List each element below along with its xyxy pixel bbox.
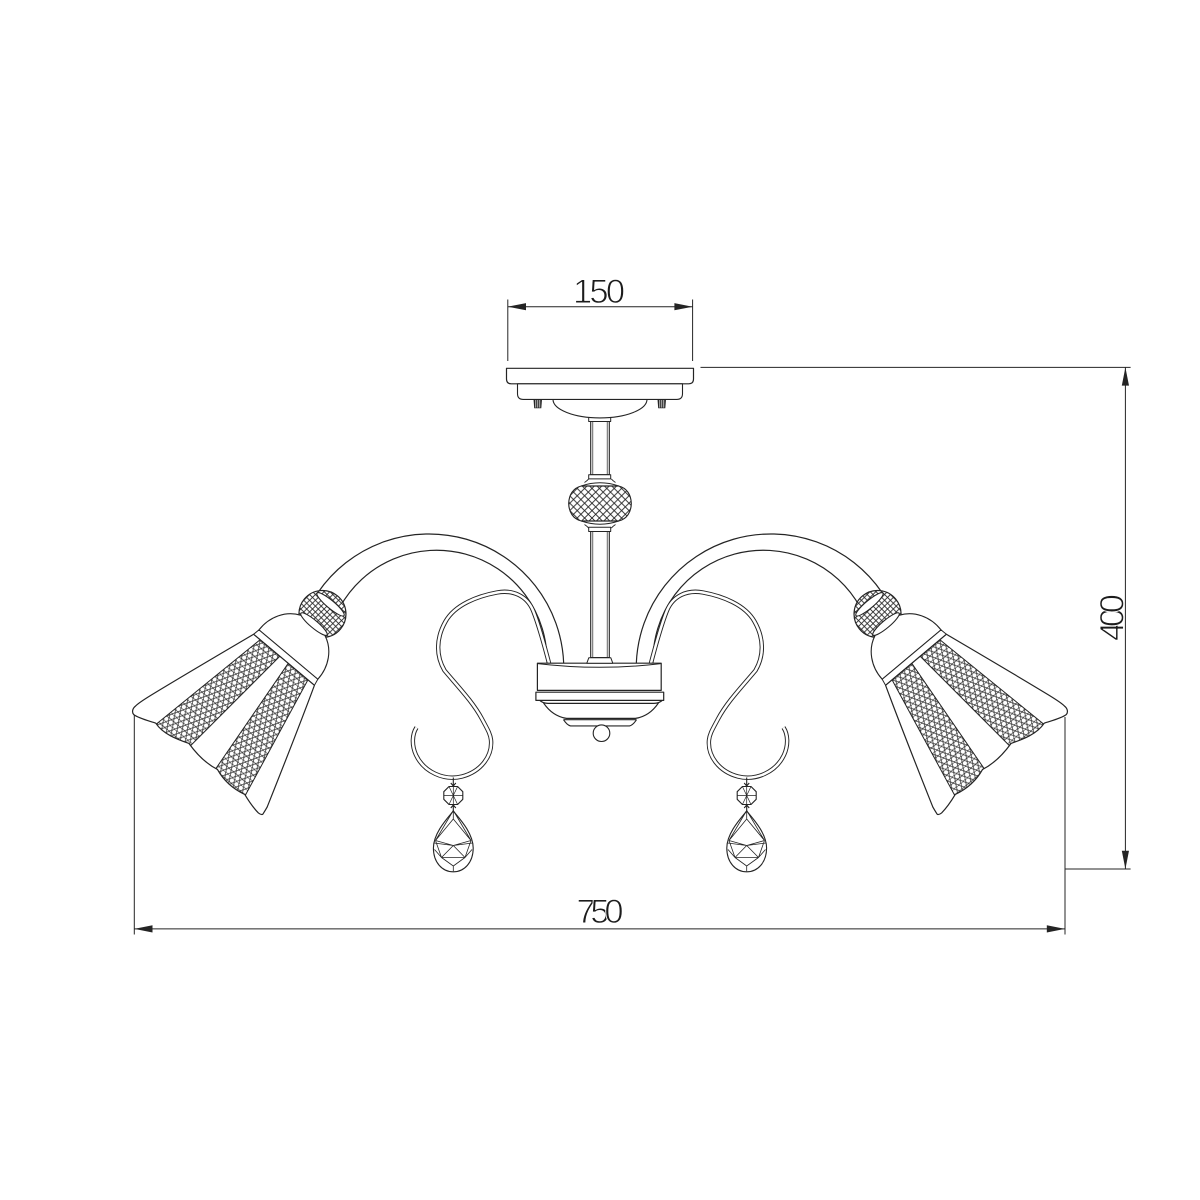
svg-text:400: 400 xyxy=(1094,594,1132,641)
svg-text:750: 750 xyxy=(577,893,624,931)
svg-text:150: 150 xyxy=(573,273,625,311)
